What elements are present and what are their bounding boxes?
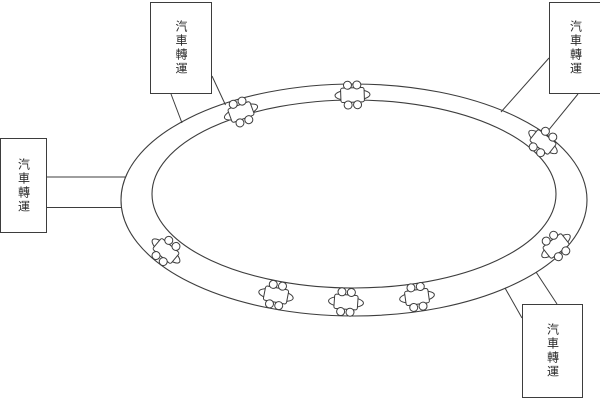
vehicle-wheel-icon [353,81,361,89]
connector-line-top-left [171,94,182,123]
car-transfer-loop-diagram: 汽車轉運 汽車轉運 汽車轉運 汽車轉運 [0,0,600,410]
vehicle-wheel-icon [346,308,355,317]
car-transfer-box-top-left: 汽車轉運 [150,2,212,94]
vehicle-cab [334,294,358,310]
car-transfer-label: 汽車轉運 [547,323,559,379]
vehicle-wheel-icon [344,101,352,109]
car-transfer-label: 汽車轉運 [18,158,30,214]
vehicle-wheel-icon [416,282,425,291]
vehicle-wheel-icon [347,288,356,297]
vehicle-wheel-icon [343,81,351,89]
vehicle-wheel-icon [406,283,415,292]
vehicle-wheel-icon [409,303,418,312]
connector-line-bottom-right [536,272,557,304]
car-transfer-label: 汽車轉運 [175,20,187,76]
vehicle-wheel-icon [353,101,361,109]
vehicle-wheel-icon [338,288,347,297]
car-transfer-box-bottom-right: 汽車轉運 [522,304,583,398]
car-transfer-box-left: 汽車轉運 [0,138,47,233]
loop-track-outer-edge [121,84,587,316]
connector-line-bottom-right [505,288,522,318]
vehicle-icon-south-west [144,229,189,273]
vehicle-wheel-icon [336,307,345,316]
vehicle-icon-north [335,80,371,109]
car-transfer-label: 汽車轉運 [570,20,582,76]
vehicle-icon-south-middle [328,287,365,317]
vehicle-icon-north-east [521,120,566,163]
connector-line-top-right [501,58,549,112]
connector-line-top-left [212,76,226,105]
loop-track-inner-edge [152,100,556,288]
vehicle-wheel-icon [419,302,428,311]
vehicle-cab [341,87,365,102]
car-transfer-box-top-right: 汽車轉運 [549,2,600,94]
loop-track-canvas [0,0,600,410]
